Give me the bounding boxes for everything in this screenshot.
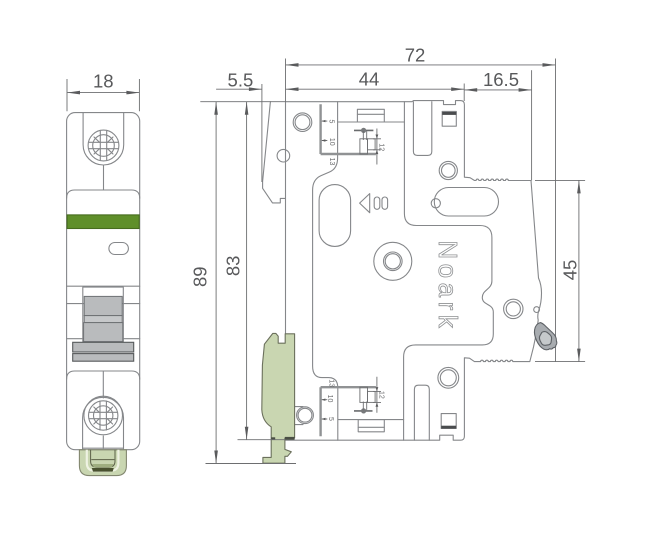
svg-text:12: 12	[378, 391, 385, 399]
svg-text:16.5: 16.5	[483, 69, 519, 90]
svg-text:83: 83	[223, 256, 244, 277]
svg-text:18: 18	[93, 71, 114, 92]
svg-text:72: 72	[405, 45, 426, 66]
svg-text:13: 13	[328, 158, 335, 166]
svg-text:45: 45	[559, 260, 580, 281]
svg-text:89: 89	[190, 266, 211, 287]
svg-text:5: 5	[327, 120, 334, 124]
svg-text:5: 5	[327, 417, 334, 421]
svg-text:12: 12	[377, 143, 384, 151]
svg-text:10: 10	[328, 138, 335, 146]
svg-text:44: 44	[359, 69, 380, 90]
svg-text:5.5: 5.5	[228, 70, 254, 91]
svg-text:Noark: Noark	[433, 240, 463, 332]
svg-text:10: 10	[326, 395, 333, 403]
svg-text:13: 13	[327, 379, 334, 387]
